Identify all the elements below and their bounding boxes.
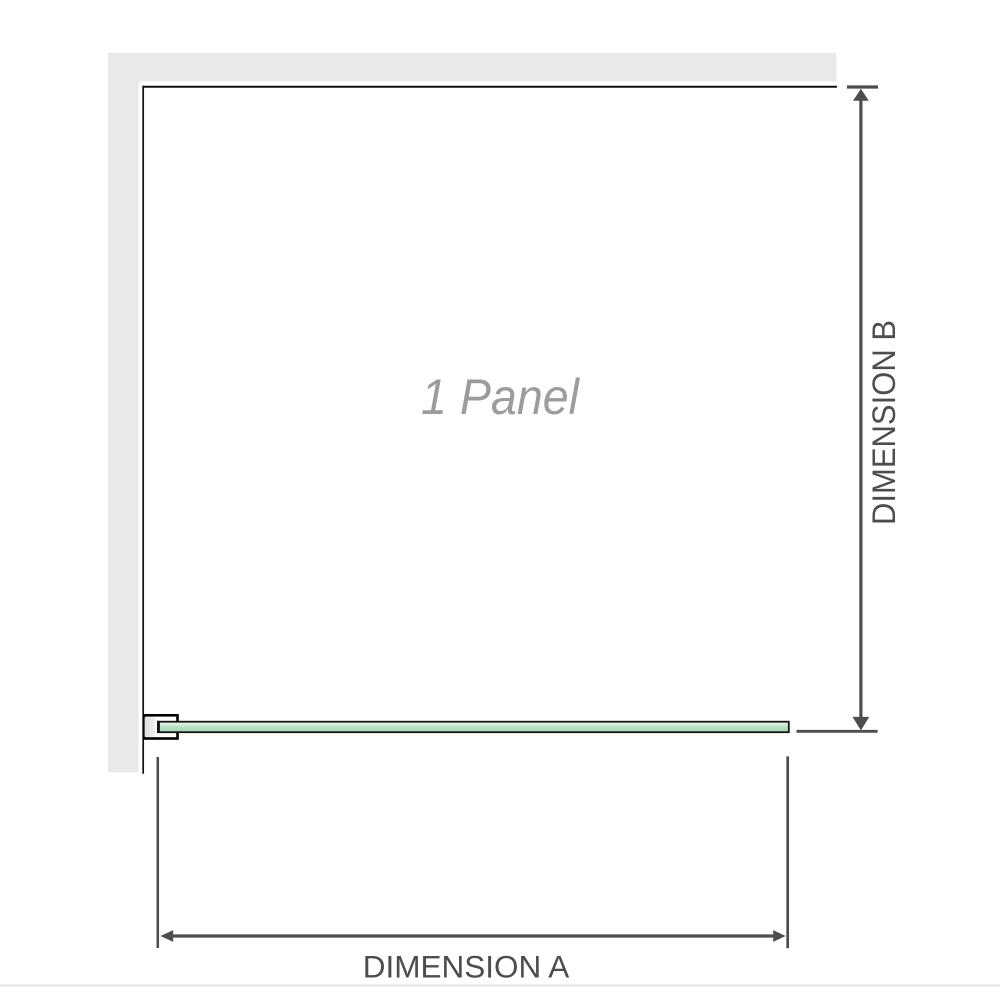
svg-text:1 Panel: 1 Panel <box>421 369 581 425</box>
svg-text:DIMENSION B: DIMENSION B <box>866 320 902 525</box>
svg-text:DIMENSION A: DIMENSION A <box>363 949 570 985</box>
